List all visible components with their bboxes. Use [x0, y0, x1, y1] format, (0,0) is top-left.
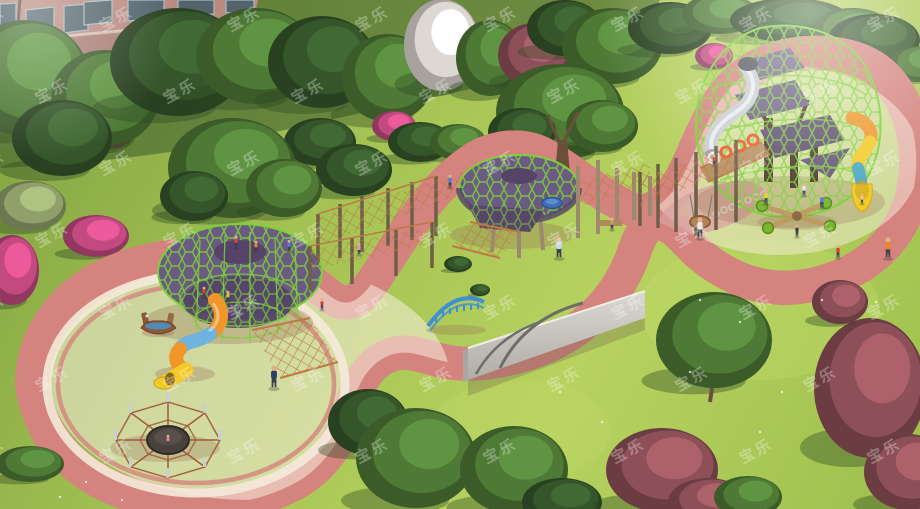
scene-canvas — [0, 0, 920, 509]
ground-spinner-disc — [541, 198, 563, 211]
tree-trunk — [710, 388, 712, 402]
slide-exit-opening — [165, 373, 175, 386]
sunlight-bloom — [560, 0, 920, 240]
playground-render: 宝乐宝乐宝乐宝乐宝乐宝乐宝乐宝乐宝乐宝乐宝乐宝乐宝乐宝乐宝乐宝乐宝乐宝乐宝乐宝乐… — [0, 0, 920, 509]
sunlight-bloom — [0, 0, 260, 200]
